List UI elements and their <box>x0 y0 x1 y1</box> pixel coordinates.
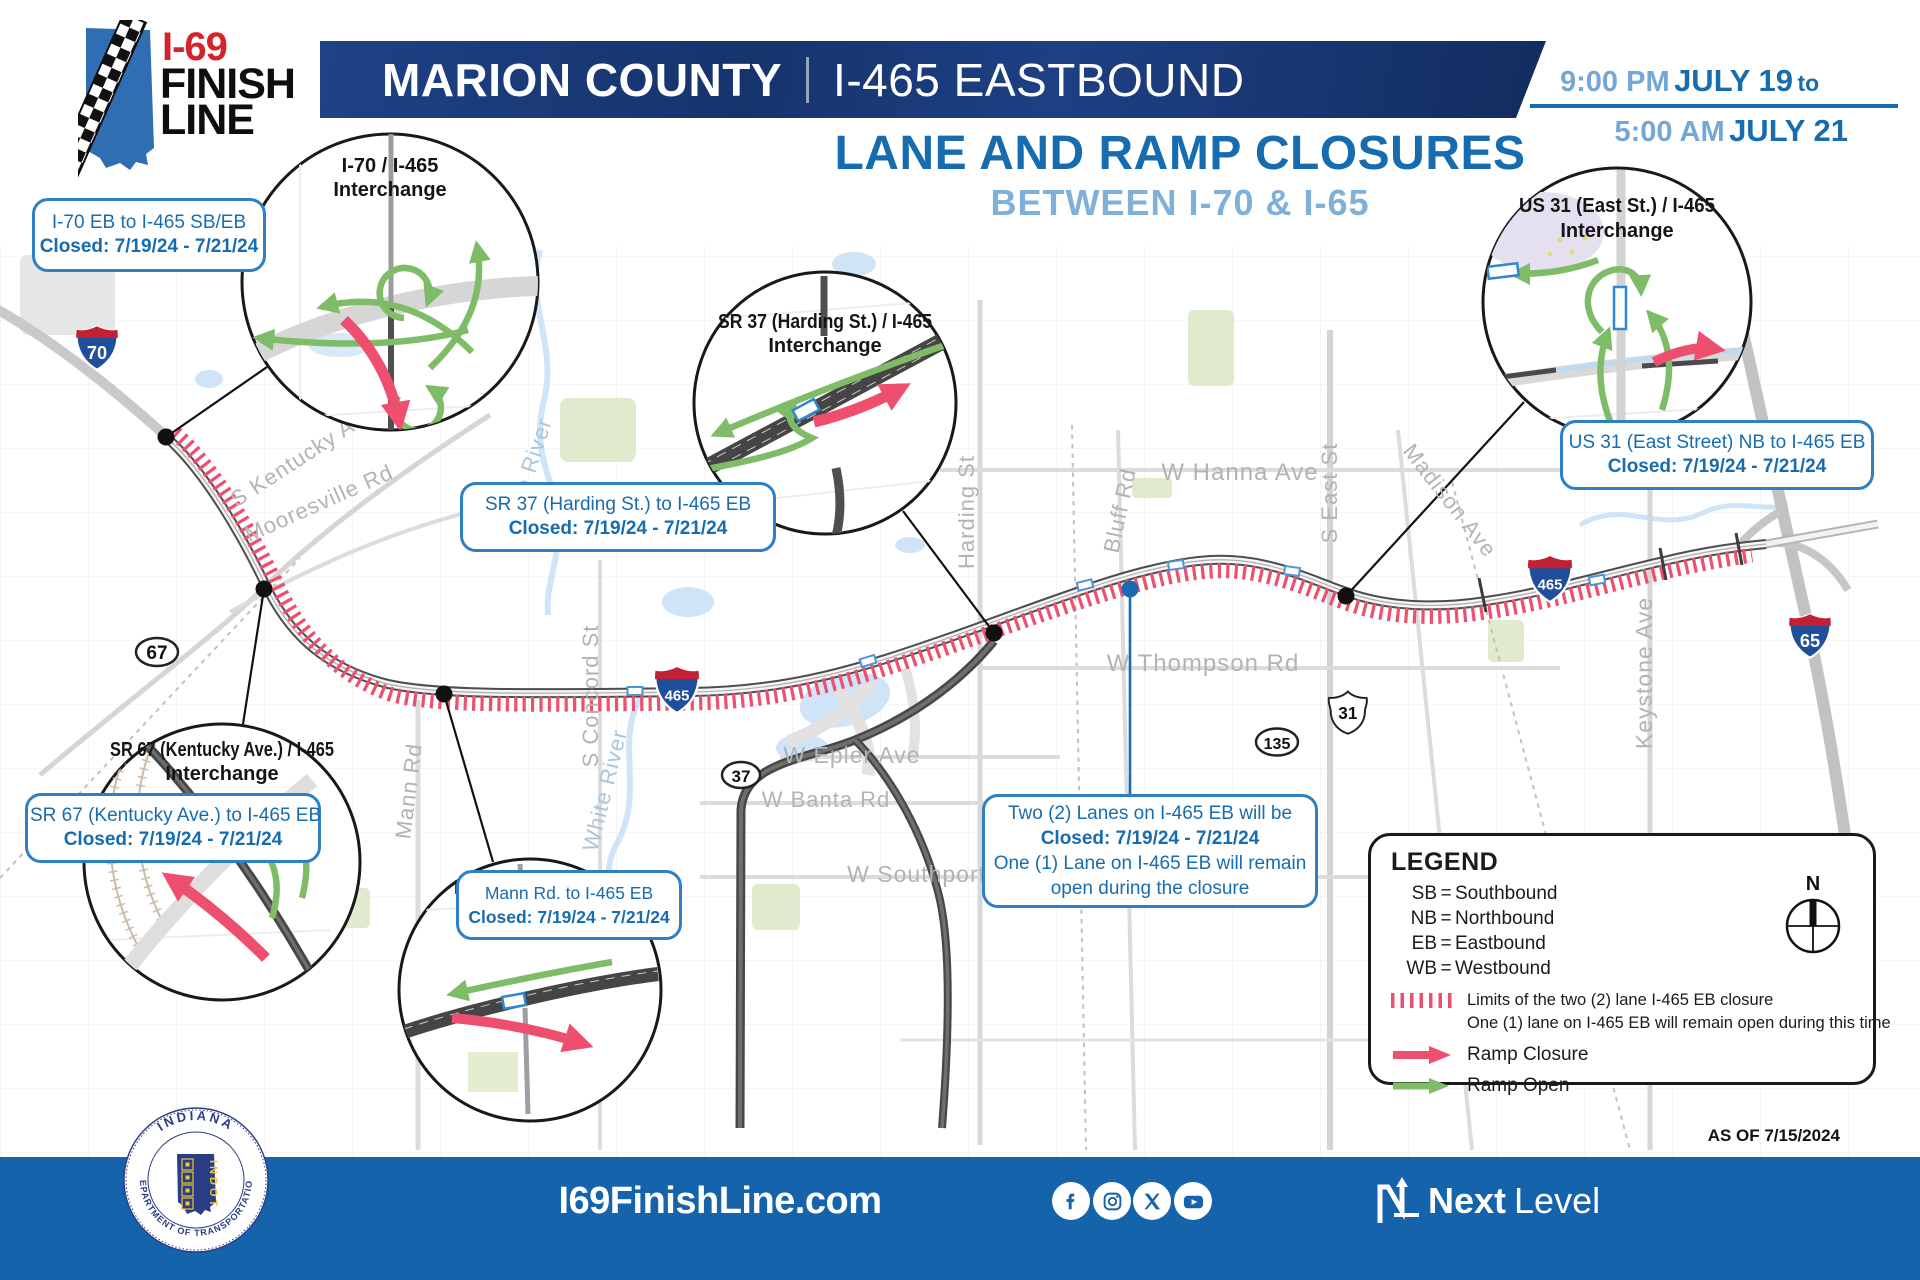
interchange-title: SR 67 (Kentucky Ave.) / I-465 <box>110 739 334 761</box>
end-time: 5:00 AM <box>1614 116 1724 148</box>
note-line4: open during the closure <box>987 876 1313 901</box>
county-title: MARION COUNTY <box>382 53 782 107</box>
road-label-banta: W Banta Rd <box>762 787 891 812</box>
seal-acronym: INDOT <box>207 1160 219 1209</box>
x-icon[interactable] <box>1133 1182 1171 1220</box>
closure-callout-i70: I-70 EB to I-465 SB/EB Closed: 7/19/24 -… <box>32 198 266 272</box>
legend-limits-row: Limits of the two (2) lane I-465 EB clos… <box>1391 989 1853 1035</box>
road-label-epler: W Epler Ave <box>783 742 920 768</box>
road-label-harding: Harding St <box>954 455 979 569</box>
ramp-open-arrow-icon <box>1391 1076 1453 1096</box>
header-banner: MARION COUNTY I-465 EASTBOUND <box>320 41 1546 118</box>
footer-bar <box>0 1157 1920 1280</box>
note-line3: One (1) Lane on I-465 EB will remain <box>987 851 1313 876</box>
legend: LEGEND SB=Southbound NB=Northbound EB=Ea… <box>1368 833 1876 1085</box>
sr135-shield-label: 135 <box>1264 736 1291 753</box>
i465-shield-label: 465 <box>665 688 690 704</box>
schedule-joiner: to <box>1797 70 1819 96</box>
banner-divider <box>806 57 809 103</box>
note-line2: Closed: 7/19/24 - 7/21/24 <box>987 826 1313 851</box>
abbr-key: WB <box>1391 956 1437 981</box>
shield-sr37: 37 <box>722 762 760 788</box>
brand-next: Next <box>1428 1180 1506 1222</box>
as-of-label: AS OF 7/15/2024 <box>1690 1126 1840 1146</box>
us31-shield-label: 31 <box>1338 703 1358 723</box>
nextlevel-logo: NextLevel <box>1372 1177 1600 1225</box>
closed-ramp-marker <box>502 993 526 1009</box>
route-title: I-465 EASTBOUND <box>833 53 1244 107</box>
nextlevel-n-icon <box>1372 1177 1420 1225</box>
interchange-subtitle: Interchange <box>1560 220 1673 242</box>
youtube-icon[interactable] <box>1174 1182 1212 1220</box>
closure-dates: Closed: 7/19/24 - 7/21/24 <box>30 828 316 852</box>
interchange-subtitle: Interchange <box>768 335 881 357</box>
website-link[interactable]: I69FinishLine.com <box>480 1180 960 1223</box>
legend-ramp-closure-row: Ramp Closure <box>1391 1044 1853 1066</box>
closure-dates: Closed: 7/19/24 - 7/21/24 <box>465 517 771 541</box>
closure-ramp: SR 67 (Kentucky Ave.) to I-465 EB <box>30 804 316 828</box>
facebook-icon[interactable] <box>1052 1182 1090 1220</box>
closure-callout-sr67: SR 67 (Kentucky Ave.) to I-465 EB Closed… <box>25 793 321 863</box>
i70-shield-label: 70 <box>87 343 107 363</box>
page-subtitle: BETWEEN I-70 & I-65 <box>800 182 1560 224</box>
i65-shield-label: 65 <box>1800 631 1820 651</box>
closure-ramp: US 31 (East Street) NB to I-465 EB <box>1565 431 1869 455</box>
interchange-subtitle: Interchange <box>165 763 278 785</box>
closure-callout-us31: US 31 (East Street) NB to I-465 EB Close… <box>1560 420 1874 490</box>
end-date: JULY 21 <box>1729 113 1848 148</box>
brand-level: Level <box>1514 1180 1600 1222</box>
sr37-shield-label: 37 <box>732 767 751 786</box>
page-title: LANE AND RAMP CLOSURES <box>800 126 1560 181</box>
i465-shield-label: 465 <box>1538 577 1563 593</box>
closure-callout-sr37: SR 37 (Harding St.) to I-465 EB Closed: … <box>460 482 776 552</box>
closure-schedule: 9:00 PM JULY 19 to 5:00 AM JULY 21 <box>1530 63 1898 149</box>
abbr-key: SB <box>1391 881 1437 906</box>
shield-sr67: 67 <box>136 638 178 666</box>
infographic-page: S Kentucky Ave Mooresville Rd White Rive… <box>0 0 1920 1280</box>
instagram-icon[interactable] <box>1093 1182 1131 1220</box>
compass-north-label: N <box>1806 873 1820 895</box>
start-time: 9:00 PM <box>1560 66 1670 98</box>
note-line1: Two (2) Lanes on I-465 EB will be <box>987 801 1313 826</box>
road-label-east-st: S East St <box>1317 443 1342 544</box>
logo-line: LINE <box>160 96 254 144</box>
schedule-start: 9:00 PM JULY 19 to <box>1530 63 1898 108</box>
closed-ramp-marker <box>1614 287 1626 329</box>
compass-icon: N <box>1777 872 1849 963</box>
interchange-title: SR 37 (Harding St.) / I-465 <box>718 311 932 333</box>
ramp-closure-label: Ramp Closure <box>1467 1044 1588 1066</box>
start-date: JULY 19 <box>1674 63 1793 98</box>
closure-dates: Closed: 7/19/24 - 7/21/24 <box>1565 455 1869 479</box>
schedule-end: 5:00 AM JULY 21 <box>1530 113 1898 149</box>
lane-closure-note: Two (2) Lanes on I-465 EB will be Closed… <box>982 794 1318 908</box>
closure-ramp: SR 37 (Harding St.) to I-465 EB <box>465 493 771 517</box>
finish-line-logo: I-69 FINISH LINE <box>78 20 358 200</box>
road-label-concord: S Concord St <box>578 625 603 768</box>
sr67-shield-label: 67 <box>146 643 167 664</box>
road-label-keystone: Keystone Ave <box>1631 597 1657 749</box>
indot-seal: INDIANA DEPARTMENT OF TRANSPORTATION IND… <box>122 1106 270 1259</box>
road-label-hanna: W Hanna Ave <box>1161 459 1318 486</box>
ramp-open-label: Ramp Open <box>1467 1075 1569 1097</box>
abbr-key: EB <box>1391 931 1437 956</box>
closure-ramp: Mann Rd. to I-465 EB <box>461 881 677 905</box>
closure-dates: Closed: 7/19/24 - 7/21/24 <box>461 905 677 929</box>
limits-line2: One (1) lane on I-465 EB will remain ope… <box>1467 1012 1891 1035</box>
closure-callout-mann: Mann Rd. to I-465 EB Closed: 7/19/24 - 7… <box>456 870 682 940</box>
road-label-thompson: W Thompson Rd <box>1107 650 1300 677</box>
legend-ramp-open-row: Ramp Open <box>1391 1075 1853 1097</box>
closure-ramp: I-70 EB to I-465 SB/EB <box>37 211 261 235</box>
shield-sr135: 135 <box>1256 729 1298 756</box>
closure-dates: Closed: 7/19/24 - 7/21/24 <box>37 235 261 259</box>
ramp-closure-arrow-icon <box>1391 1045 1453 1065</box>
abbr-key: NB <box>1391 906 1437 931</box>
limits-line1: Limits of the two (2) lane I-465 EB clos… <box>1467 989 1891 1012</box>
closed-ramp-marker <box>1487 263 1518 279</box>
closure-hatch-icon <box>1391 993 1455 1008</box>
